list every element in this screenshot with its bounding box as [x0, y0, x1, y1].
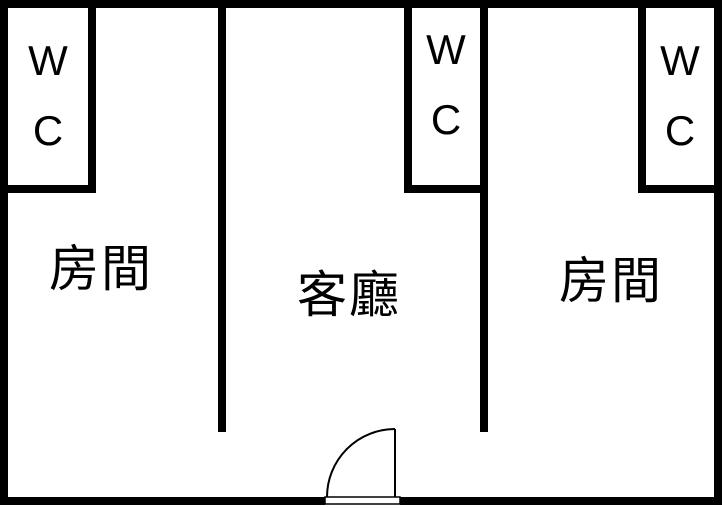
door-swing-arc [327, 429, 395, 497]
door-threshold [325, 497, 400, 504]
room-label-living-room: 客廳 [297, 255, 401, 327]
wc-middle-left-wall [404, 0, 412, 193]
wc-label-right-line2: C [646, 96, 714, 166]
room-label-bedroom-right: 房間 [559, 241, 663, 313]
outer-wall-bottom-left-segment [0, 497, 325, 505]
wc-right-bottom-wall [638, 185, 722, 193]
floor-plan: W C W C W C 房間 客廳 房間 [0, 0, 722, 508]
wc-label-left-line2: C [8, 96, 88, 166]
wc-left-bottom-wall [0, 185, 96, 193]
partition-wall-left [218, 0, 226, 432]
room-label-bedroom-left: 房間 [49, 229, 153, 301]
outer-wall-top [0, 0, 722, 8]
wc-label-right-line1: W [646, 26, 714, 96]
outer-wall-right [714, 0, 722, 505]
wc-label-middle: W C [412, 8, 480, 155]
wc-label-middle-line2: C [412, 85, 480, 155]
wc-left-right-wall [88, 0, 96, 193]
wc-middle-bottom-wall [404, 185, 488, 193]
partition-wall-right [480, 0, 488, 432]
outer-wall-bottom-right-segment [400, 497, 722, 505]
wc-label-middle-line1: W [412, 15, 480, 85]
wc-label-left: W C [8, 8, 88, 166]
outer-wall-left [0, 0, 8, 505]
wc-label-left-line1: W [8, 26, 88, 96]
wc-right-left-wall [638, 0, 646, 193]
wc-label-right: W C [646, 8, 714, 166]
